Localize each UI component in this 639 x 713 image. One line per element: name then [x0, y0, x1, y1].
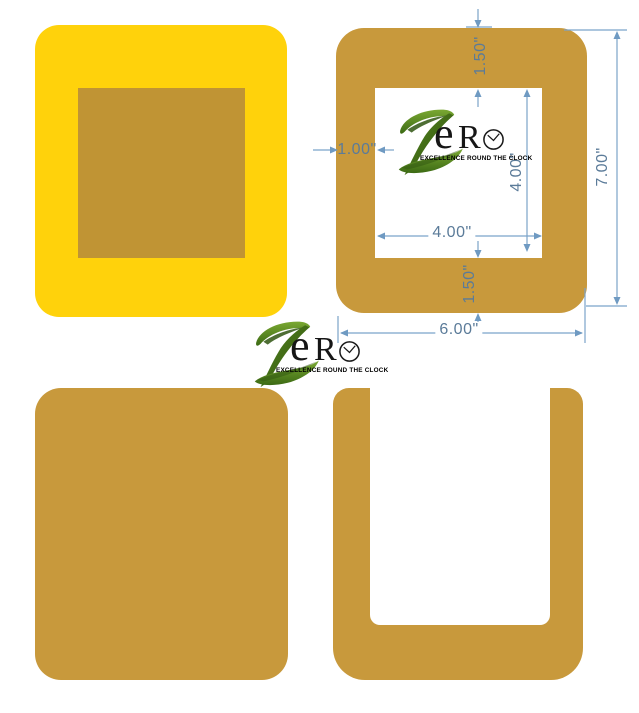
logo-letter-e: e: [290, 324, 310, 368]
logo-tagline: EXCELLENCE ROUND THE CLOCK: [276, 367, 388, 375]
product-diagram: 1.50" 1.00" 4.00" 4.00" 7.00" 6.00" 1.50…: [0, 0, 639, 713]
dim-label-inner-width: 4.00": [428, 225, 475, 241]
u-shaped-mat: [333, 388, 583, 680]
zero-logo-watermark: e R EXCELLENCE ROUND THE CLOCK: [390, 104, 510, 168]
dim-label-bottom-border: 1.50": [462, 264, 478, 303]
yellow-mat-with-inset: [35, 25, 287, 317]
mat-inset-square: [78, 88, 245, 258]
logo-z-graphic: [246, 318, 324, 390]
logo-letter-e: e: [434, 112, 454, 156]
dim-label-outer-height: 7.00": [595, 147, 611, 186]
clock-icon: [338, 340, 361, 363]
zero-logo-center: e R EXCELLENCE ROUND THE CLOCK: [246, 316, 366, 380]
dim-label-left-border: 1.00": [337, 142, 376, 158]
u-mat-opening: [370, 388, 550, 625]
dim-label-outer-width: 6.00": [435, 322, 482, 338]
solid-mat: [35, 388, 288, 680]
logo-letter-r: R: [314, 333, 337, 367]
logo-tagline: EXCELLENCE ROUND THE CLOCK: [420, 155, 532, 163]
logo-letter-r: R: [458, 121, 481, 155]
dim-label-top-border: 1.50": [473, 36, 489, 75]
logo-z-graphic: [390, 106, 468, 178]
clock-icon: [482, 128, 505, 151]
